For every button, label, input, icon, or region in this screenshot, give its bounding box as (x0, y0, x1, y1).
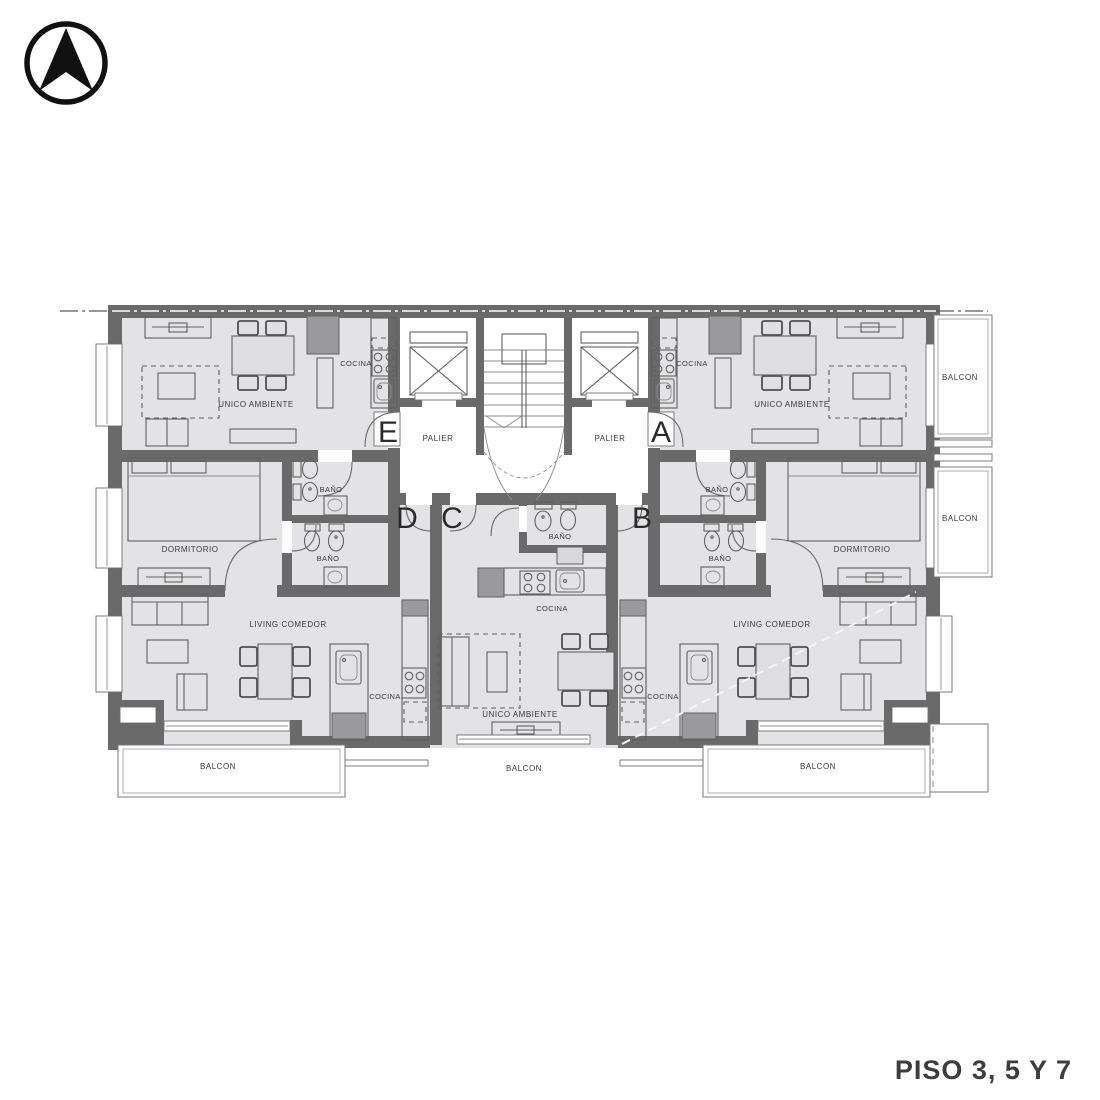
room-label-bano-c: BAÑO (549, 532, 572, 541)
apartment-letter-d: D (396, 502, 418, 535)
room-label-living-comedor-d: LIVING COMEDOR (249, 620, 326, 629)
apartment-letter-e: E (378, 416, 398, 449)
apartment-letter-b: B (632, 502, 652, 535)
balcony-outline (118, 745, 428, 797)
room-label-balcon-right-mid: BALCON (942, 514, 978, 523)
room-label-bano-b: BAÑO (709, 554, 732, 563)
floor-plan: UNICO AMBIENTE COCINA PALIER PALIER COCI… (0, 0, 1100, 1100)
room-label-cocina-d: COCINA (369, 692, 401, 701)
plan-graphic: UNICO AMBIENTE COCINA PALIER PALIER COCI… (60, 305, 992, 797)
room-label-palier-right: PALIER (595, 434, 626, 443)
apartment-letter-a: A (651, 416, 671, 449)
room-label-cocina-a: COCINA (676, 359, 708, 368)
room-label-bano-e: BAÑO (320, 485, 343, 494)
room-label-balcon-bottom-right: BALCON (800, 762, 836, 771)
north-arrow-icon (27, 24, 105, 102)
room-label-balcon-right-top: BALCON (942, 373, 978, 382)
room-label-living-comedor-b: LIVING COMEDOR (733, 620, 810, 629)
room-label-palier-left: PALIER (423, 434, 454, 443)
room-label-dormitorio-b: DORMITORIO (834, 545, 891, 554)
room-label-cocina-e: COCINA (340, 359, 372, 368)
room-label-cocina-b: COCINA (647, 692, 679, 701)
room-label-balcon-bottom-center: BALCON (506, 764, 542, 773)
room-label-cocina-c: COCINA (536, 604, 568, 613)
room-label-balcon-bottom-left: BALCON (200, 762, 236, 771)
room-label-bano-a: BAÑO (706, 485, 729, 494)
apartment-letter-c: C (441, 502, 463, 535)
floor-title: PISO 3, 5 Y 7 (895, 1055, 1072, 1085)
room-label-bano-d: BAÑO (317, 554, 340, 563)
room-label-dormitorio-d: DORMITORIO (162, 545, 219, 554)
room-label-unico-ambiente-c: UNICO AMBIENTE (482, 710, 557, 719)
floor-plan-page: UNICO AMBIENTE COCINA PALIER PALIER COCI… (0, 0, 1100, 1100)
room-label-unico-ambiente-e: UNICO AMBIENTE (218, 400, 293, 409)
room-label-unico-ambiente-a: UNICO AMBIENTE (754, 400, 829, 409)
